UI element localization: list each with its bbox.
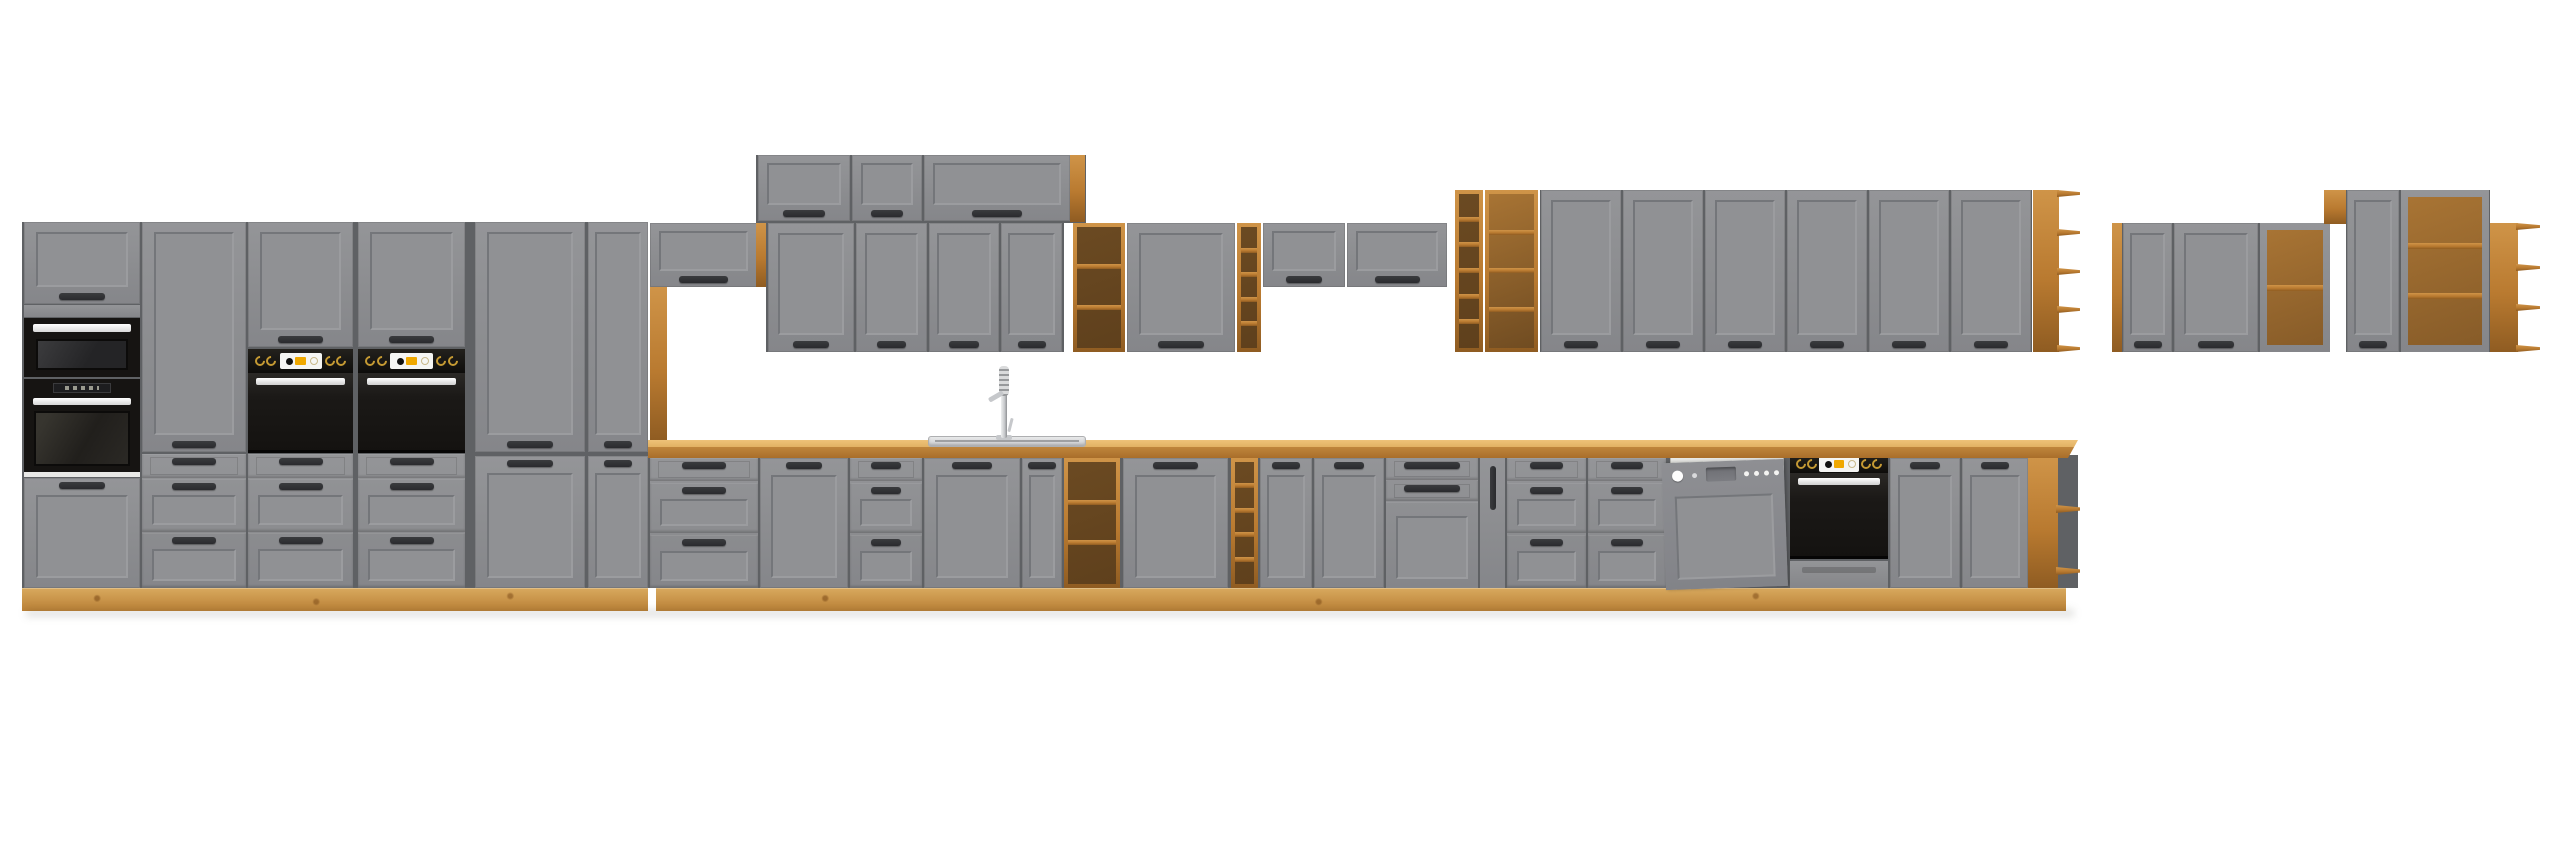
base-drawers-2-drawer-1-handle	[871, 462, 901, 469]
base-drawers-2-drawer-3-handle	[871, 539, 901, 546]
left-plinth	[22, 588, 648, 611]
drawer-stack-2	[248, 454, 353, 588]
oven-column-2-control-panel-display-dot	[397, 358, 404, 365]
base-drawers-1-drawer-3-panel	[660, 551, 748, 581]
base-drawers-1-drawer-1-handle	[682, 462, 726, 469]
low-flip-cabinet-1	[1263, 223, 1345, 287]
mid-wall-door-1-panel	[778, 233, 844, 335]
oven-column-2-top-door-handle	[389, 336, 434, 343]
base-drawers-2-drawer-3-panel	[860, 551, 912, 581]
pantry-door-1	[142, 222, 246, 452]
oven-column-2-top-door	[358, 222, 465, 347]
tower-top-door-panel	[36, 232, 128, 287]
base-drawers-2-drawer-3	[850, 535, 922, 588]
pantry-door-3	[588, 222, 648, 452]
dishwasher-program-knob	[1672, 470, 1683, 481]
drawer-stack-1-drawer-3-handle	[172, 537, 216, 544]
right-wall-door-5-handle	[1892, 341, 1926, 348]
right-wall-open-shelf	[1485, 190, 1538, 352]
oven-column-2-control-panel-knob-4	[446, 354, 460, 368]
right-wall-door-3	[1705, 190, 1785, 352]
right-wall-end-shelf-shelf-board-0	[2057, 190, 2080, 197]
right-wall-wine-column-interior	[1459, 194, 1479, 348]
right-wall-door-1-panel	[1551, 200, 1611, 335]
right-wall-wine-column-shelf-board-1	[1459, 217, 1479, 222]
drawer-stack-2-drawer-2	[248, 479, 353, 531]
far-right-open-unit-1-shelf-board-1	[2267, 285, 2323, 291]
far-right-open-unit-2-shelf-board-1	[2408, 243, 2482, 249]
drawer-stack-2-drawer-1-handle	[279, 458, 323, 465]
oven-column-1-oven-door-handle-bar	[256, 378, 344, 385]
drawer-stack-1-drawer-3-panel	[152, 549, 236, 581]
base-open-shelf	[1064, 458, 1120, 588]
base-drawers-4-drawer-1-handle	[1611, 462, 1644, 469]
base-open-shelf-shelf-board-1	[1068, 500, 1116, 505]
far-right-open-unit-1-interior	[2267, 230, 2323, 345]
drawer-stack-1-drawer-2-handle	[172, 483, 216, 490]
base-drawers-3-drawer-2	[1507, 483, 1586, 534]
oven-column-1-top-door	[248, 222, 353, 347]
far-right-end-shelf-side-board	[2490, 223, 2518, 352]
base-drawers-2-drawer-2-handle	[871, 487, 901, 494]
base-drawers-4-drawer-3	[1588, 535, 1666, 588]
mid-wall-door-3-handle	[949, 341, 978, 348]
drawer-stack-3-drawer-2-panel	[368, 495, 455, 524]
top-flip-cabinet-3	[924, 155, 1070, 221]
pantry-lower-door-1-panel	[487, 473, 573, 578]
base-drawers-2-drawer-1	[850, 458, 922, 481]
drawer-stack-3-drawer-3-panel	[368, 549, 455, 581]
far-right-door-1	[2123, 223, 2172, 352]
mid-wall-door-4-handle	[1018, 341, 1046, 348]
right-wall-door-1	[1541, 190, 1621, 352]
low-flip-cabinet-1-handle	[1286, 276, 1323, 283]
base-oven-control-panel-display	[1819, 456, 1858, 472]
pantry-door-1-handle	[172, 441, 216, 448]
drawer-stack-3-drawer-2-handle	[390, 483, 434, 490]
base-end-shelf-shelf-board-2	[2056, 567, 2080, 575]
tower-oven-display	[53, 383, 111, 393]
low-flip-cabinet-2-handle	[1375, 276, 1420, 283]
tower-bottom-door-handle	[59, 482, 105, 489]
mid-wall-open-shelf-interior	[1077, 227, 1121, 348]
base-door-4-panel	[1322, 475, 1376, 578]
base-door-2-handle	[1153, 462, 1197, 469]
drawer-stack-3-drawer-3	[358, 533, 465, 588]
pantry-lower-door-2-panel	[595, 473, 641, 578]
mid-wall-door-2-panel	[865, 233, 918, 335]
oven-column-2-top-door-panel	[370, 232, 453, 330]
floor-shadow	[26, 609, 2074, 617]
right-wall-open-shelf-shelf-board-1	[1489, 230, 1534, 235]
far-right-end-shelf	[2490, 223, 2540, 352]
drawer-stack-1-drawer-1-handle	[172, 458, 216, 465]
microwave	[24, 318, 140, 377]
right-wall-open-shelf-interior	[1489, 194, 1534, 348]
drawer-stack-3	[358, 454, 465, 588]
base-oven-control-panel-display-ring	[1848, 460, 1856, 468]
tower-divider	[24, 472, 140, 477]
far-right-open-unit-2	[2401, 190, 2489, 352]
mid-wall-wine-column	[1237, 223, 1261, 352]
dishwasher-panel-inset	[1675, 493, 1776, 579]
right-wall-end-shelf-side-board	[2033, 190, 2059, 352]
mid-wall-door-2-handle	[877, 341, 907, 348]
top-flip-cabinet-2-handle	[871, 210, 903, 217]
right-wall-door-6-handle	[1974, 341, 2008, 348]
drawer-stack-1-drawer-2-panel	[152, 495, 236, 524]
base-oven-control-panel-knob-4	[1870, 457, 1884, 471]
far-right-end-shelf-shelf-board-2	[2516, 304, 2540, 311]
dishwasher-handle-pocket	[1706, 467, 1736, 482]
base-door-2-panel	[1135, 475, 1216, 578]
oven-column-1-control-panel-knob-4	[334, 354, 348, 368]
dishwasher-brand-mark	[1692, 473, 1697, 478]
base-door-6	[1962, 458, 2028, 588]
base-pullout-cabinet	[1480, 458, 1505, 588]
base-drawers-3-drawer-2-panel	[1517, 499, 1576, 527]
dishwasher-front-panel	[1662, 459, 1788, 590]
mid-wall-door-5	[1127, 223, 1235, 352]
pantry-door-2-handle	[507, 441, 553, 448]
top-flip-cabinet-1-handle	[783, 210, 824, 217]
right-wall-door-2	[1623, 190, 1703, 352]
mid-wall-wine-column-interior	[1241, 227, 1257, 348]
microwave-handle-bar	[33, 324, 131, 332]
oven-column-2-control-panel-display	[390, 353, 433, 369]
base-oven-door-bottom-trim	[1790, 556, 1888, 559]
oven-column-1-oven-door-bottom-trim	[248, 450, 353, 453]
base-wine-column-shelf-board-1	[1235, 483, 1254, 488]
mid-wall-open-shelf-shelf-board-1	[1077, 264, 1121, 269]
base-drawer-combo-deep-drawer-panel	[1396, 516, 1468, 579]
base-drawers-3	[1507, 458, 1586, 588]
base-door-4-handle	[1334, 462, 1363, 469]
base-drawers-4	[1588, 458, 1666, 588]
mid-wall-door-5-panel	[1139, 233, 1223, 335]
base-drawers-1-drawer-3	[650, 535, 758, 588]
pantry-door-3-handle	[604, 441, 632, 448]
base-drawers-1-drawer-1	[650, 458, 758, 481]
base-drawers-3-drawer-1-handle	[1530, 462, 1563, 469]
base-drawers-3-drawer-3-handle	[1530, 539, 1563, 546]
right-wall-end-shelf-shelf-board-4	[2057, 345, 2080, 352]
base-wine-column-interior	[1235, 462, 1254, 584]
oven-column-2-control-panel-display-timer	[406, 357, 416, 365]
base-drawers-4-drawer-3-panel	[1598, 551, 1656, 581]
countertop	[648, 440, 2078, 458]
right-wall-door-5-panel	[1879, 200, 1939, 335]
pantry-lower-door-1	[475, 456, 585, 588]
oven-column-1-control-panel	[248, 349, 353, 373]
base-door-3-handle	[1272, 462, 1300, 469]
drawer-stack-2-drawer-3-handle	[279, 537, 323, 544]
mid-wall-door-1	[768, 223, 854, 352]
mid-wall-door-5-handle	[1158, 341, 1203, 348]
oven-column-1-control-panel-display-timer	[295, 357, 305, 365]
base-drawers-2	[850, 458, 922, 588]
oven-column-2-control-panel-knob-1	[363, 354, 377, 368]
right-wall-wine-column-shelf-board-4	[1459, 294, 1479, 299]
oven-column-1-control-panel-knob-1	[252, 354, 266, 368]
oven-column-1-control-panel-display-dot	[286, 358, 293, 365]
drawer-stack-2-drawer-2-handle	[279, 483, 323, 490]
base-drawers-3-drawer-3	[1507, 535, 1586, 588]
pantry-lower-door-2	[588, 456, 648, 588]
mid-wall-wine-column-shelf-board-4	[1241, 321, 1257, 326]
top-flip-cabinet-1	[758, 155, 850, 221]
dishwasher	[1666, 452, 1788, 588]
top-flip-row-oak-side	[1070, 155, 1085, 222]
base-pullout-cabinet-vertical-handle	[1490, 466, 1496, 510]
niche-wall-cabinet-handle	[679, 276, 727, 283]
mid-wall-door-2	[856, 223, 927, 352]
base-drawers-3-drawer-2-handle	[1530, 487, 1563, 494]
base-oven-lower-drawer	[1790, 561, 1888, 588]
base-drawers-1-drawer-2-panel	[660, 499, 748, 527]
drawer-stack-1-drawer-1	[142, 454, 246, 478]
right-wall-end-shelf	[2033, 190, 2080, 352]
tower-bottom-door	[24, 478, 140, 588]
tower-rail	[24, 305, 140, 317]
oven-column-1-top-door-panel	[260, 232, 341, 330]
top-flip-cabinet-3-handle	[972, 210, 1022, 217]
drawer-stack-1-drawer-2	[142, 479, 246, 531]
base-oven-door	[1790, 473, 1888, 559]
base-door-6-handle	[1981, 462, 2009, 469]
right-wall-wine-column-shelf-board-5	[1459, 319, 1479, 324]
right-wall-end-shelf-shelf-board-2	[2057, 268, 2080, 275]
base-oven-control-panel-knob-2	[1804, 457, 1818, 471]
drawer-stack-2-drawer-3	[248, 533, 353, 588]
dishwasher-button-2	[1754, 471, 1759, 476]
sink-base-door-2	[1022, 458, 1062, 588]
tower-oven-window	[34, 411, 130, 466]
drawer-stack-3-drawer-3-handle	[390, 537, 434, 544]
far-right-open-unit-2-interior	[2408, 197, 2482, 345]
base-wine-column-shelf-board-4	[1235, 557, 1254, 562]
mid-wall-door-3	[929, 223, 999, 352]
drawer-stack-3-drawer-1	[358, 454, 465, 478]
base-drawer-combo-drawer-1-handle	[1404, 462, 1459, 469]
far-right-door-3-handle	[2359, 341, 2387, 348]
far-right-end-shelf-shelf-board-1	[2516, 264, 2540, 271]
far-right-door-2	[2174, 223, 2258, 352]
base-door-3	[1260, 458, 1312, 588]
base-door-6-panel	[1970, 475, 2020, 578]
tower-top-door	[24, 222, 140, 304]
mid-wall-door-4	[1001, 223, 1062, 352]
faucet-lever	[1007, 418, 1013, 432]
base-door-4	[1314, 458, 1384, 588]
countertop-front-edge	[648, 447, 2078, 458]
right-wall-door-6	[1951, 190, 2031, 352]
right-wall-end-shelf-shelf-board-3	[2057, 306, 2080, 313]
right-wall-door-4-panel	[1797, 200, 1857, 335]
base-oven-lower-drawer-groove	[1802, 567, 1876, 573]
far-right-door-2-panel	[2184, 233, 2248, 335]
oven-column-2-control-panel-knob-2	[374, 354, 388, 368]
oven-column-2-oven-door	[358, 373, 465, 453]
mid-wall-door-4-panel	[1008, 233, 1055, 335]
right-wall-door-6-panel	[1961, 200, 2021, 335]
oven-column-2-oven-door-bottom-trim	[358, 450, 465, 453]
top-flip-cabinet-2-panel	[861, 163, 913, 205]
low-flip-cabinet-2-panel	[1356, 231, 1438, 271]
base-drawers-1	[650, 458, 758, 588]
dishwasher-button-3	[1764, 470, 1769, 475]
base-drawers-4-drawer-2-panel	[1598, 499, 1656, 527]
base-drawer-combo-drawer-2-handle	[1404, 485, 1459, 492]
dishwasher-button-4	[1774, 470, 1779, 475]
far-right-end-shelf-shelf-board-0	[2516, 223, 2540, 230]
base-drawers-4-drawer-2	[1588, 483, 1666, 534]
niche-side-oak-panel	[650, 287, 667, 441]
pantry-door-3-panel	[595, 232, 641, 435]
far-right-end-shelf-shelf-board-3	[2516, 345, 2540, 352]
drawer-stack-3-drawer-2	[358, 479, 465, 531]
pantry-lower-door-2-handle	[604, 460, 632, 467]
oven-column-1-oven-door	[248, 373, 353, 453]
right-wall-wine-column-shelf-board-3	[1459, 268, 1479, 273]
far-right-open-unit-1	[2260, 223, 2330, 352]
base-end-shelf	[2028, 458, 2078, 588]
base-drawers-2-drawer-2-panel	[860, 499, 912, 527]
right-wall-door-2-panel	[1633, 200, 1693, 335]
mid-wall-door-3-panel	[937, 233, 991, 335]
base-drawer-combo-drawer-1	[1386, 458, 1478, 480]
base-wine-column	[1231, 458, 1258, 588]
base-door-1	[760, 458, 848, 588]
base-wine-column-shelf-board-3	[1235, 532, 1254, 537]
top-flip-cabinet-3-panel	[933, 163, 1061, 205]
base-door-3-panel	[1267, 475, 1305, 578]
base-door-1-panel	[771, 475, 837, 578]
far-right-door-1-panel	[2130, 233, 2165, 335]
far-right-door-2-handle	[2198, 341, 2233, 348]
oven-column-2-control-panel-display-ring	[421, 357, 429, 365]
right-wall-wine-column-shelf-board-2	[1459, 242, 1479, 247]
right-wall-door-3-panel	[1715, 200, 1775, 335]
base-end-shelf-side-board	[2028, 458, 2058, 588]
top-flip-cabinet-1-panel	[767, 163, 841, 205]
pantry-door-1-panel	[154, 232, 234, 435]
base-wine-column-shelf-board-2	[1235, 508, 1254, 513]
base-drawers-3-drawer-1	[1507, 458, 1586, 481]
mid-wall-open-shelf-shelf-board-2	[1077, 305, 1121, 310]
base-drawer-combo-drawer-2	[1386, 481, 1478, 501]
drawer-stack-2-drawer-3-panel	[258, 549, 343, 581]
pantry-door-2-panel	[487, 232, 573, 435]
oven-column-1-control-panel-display	[280, 353, 322, 369]
sink-base-door-2-handle	[1028, 462, 1056, 469]
base-drawer-combo	[1386, 458, 1478, 588]
pantry-lower-door-1-handle	[507, 460, 553, 467]
base-open-shelf-interior	[1068, 462, 1116, 584]
mid-wall-wine-column-shelf-board-1	[1241, 248, 1257, 253]
right-wall-door-4	[1787, 190, 1867, 352]
mid-wall-door-1-handle	[793, 341, 829, 348]
base-open-shelf-shelf-board-2	[1068, 540, 1116, 545]
low-flip-cabinet-2	[1347, 223, 1447, 287]
far-right-oak-side	[2112, 223, 2122, 352]
base-drawers-3-drawer-3-panel	[1517, 551, 1576, 581]
tower-top-door-handle	[59, 293, 105, 300]
mid-wall-open-shelf	[1073, 223, 1125, 352]
sink-base-door-1	[924, 458, 1020, 588]
base-drawer-combo-deep-drawer	[1386, 502, 1478, 588]
niche-wall-cabinet-panel	[659, 231, 748, 271]
drawer-stack-2-drawer-1	[248, 454, 353, 478]
low-flip-cabinet-1-panel	[1272, 231, 1336, 271]
pantry-door-2	[475, 222, 585, 452]
base-door-5-handle	[1910, 462, 1939, 469]
base-oven-control-panel-display-timer	[1834, 460, 1843, 468]
tower-oven	[24, 379, 140, 472]
drawer-stack-3-drawer-1-handle	[390, 458, 434, 465]
base-oven-door-handle-bar	[1798, 478, 1880, 485]
far-right-door-1-handle	[2134, 341, 2162, 348]
mid-wall-wine-column-shelf-board-2	[1241, 272, 1257, 277]
base-drawers-4-drawer-1	[1588, 458, 1666, 481]
base-drawers-2-drawer-2	[850, 483, 922, 534]
drawer-stack-1-drawer-3	[142, 533, 246, 588]
mid-wall-wine-column-shelf-board-3	[1241, 297, 1257, 302]
base-end-shelf-shelf-board-1	[2056, 505, 2080, 513]
countertop-top-surface	[648, 440, 2078, 447]
right-wall-door-1-handle	[1564, 341, 1598, 348]
base-oven-control-panel-display-dot	[1825, 461, 1832, 468]
right-wall-door-4-handle	[1810, 341, 1844, 348]
right-wall-door-3-handle	[1728, 341, 1762, 348]
base-drawers-4-drawer-3-handle	[1611, 539, 1644, 546]
oven-column-1-control-panel-knob-2	[264, 354, 278, 368]
base-drawers-1-drawer-2-handle	[682, 487, 726, 494]
oven-column-1-control-panel-display-ring	[310, 357, 318, 365]
sink-base-door-2-panel	[1029, 475, 1055, 578]
sink-base-door-1-handle	[952, 462, 992, 469]
base-door-5-panel	[1898, 475, 1952, 578]
right-wall-open-shelf-shelf-board-3	[1489, 307, 1534, 312]
sink-basin-line	[935, 440, 1079, 442]
base-door-1-handle	[786, 462, 823, 469]
far-right-door-3-panel	[2354, 200, 2392, 335]
right-wall-door-5	[1869, 190, 1949, 352]
sink-base-door-1-panel	[936, 475, 1008, 578]
tower-bottom-door-panel	[36, 495, 128, 578]
drawer-stack-1	[142, 454, 246, 588]
oven-column-1-top-door-handle	[278, 336, 322, 343]
base-drawers-1-drawer-2	[650, 483, 758, 534]
base-door-2	[1123, 458, 1228, 588]
right-wall-door-2-handle	[1646, 341, 1680, 348]
dishwasher-control-row	[1662, 463, 1785, 485]
oven-column-2-oven-door-handle-bar	[367, 378, 457, 385]
base-plinth	[656, 588, 2066, 611]
right-wall-end-shelf-shelf-board-1	[2057, 229, 2080, 236]
drawer-stack-2-drawer-2-panel	[258, 495, 343, 524]
kitchen-set-render	[0, 0, 2560, 848]
right-wall-wine-column	[1455, 190, 1483, 352]
far-right-open-unit-2-shelf-board-2	[2408, 293, 2482, 299]
base-drawers-1-drawer-3-handle	[682, 539, 726, 546]
microwave-window	[36, 339, 128, 370]
tower-oven-handle-bar	[33, 398, 131, 405]
oven-column-2-control-panel-knob-3	[434, 354, 448, 368]
tower-oven-display-digits	[65, 386, 99, 390]
right-wall-open-shelf-shelf-board-2	[1489, 268, 1534, 273]
base-drawers-4-drawer-2-handle	[1611, 487, 1644, 494]
